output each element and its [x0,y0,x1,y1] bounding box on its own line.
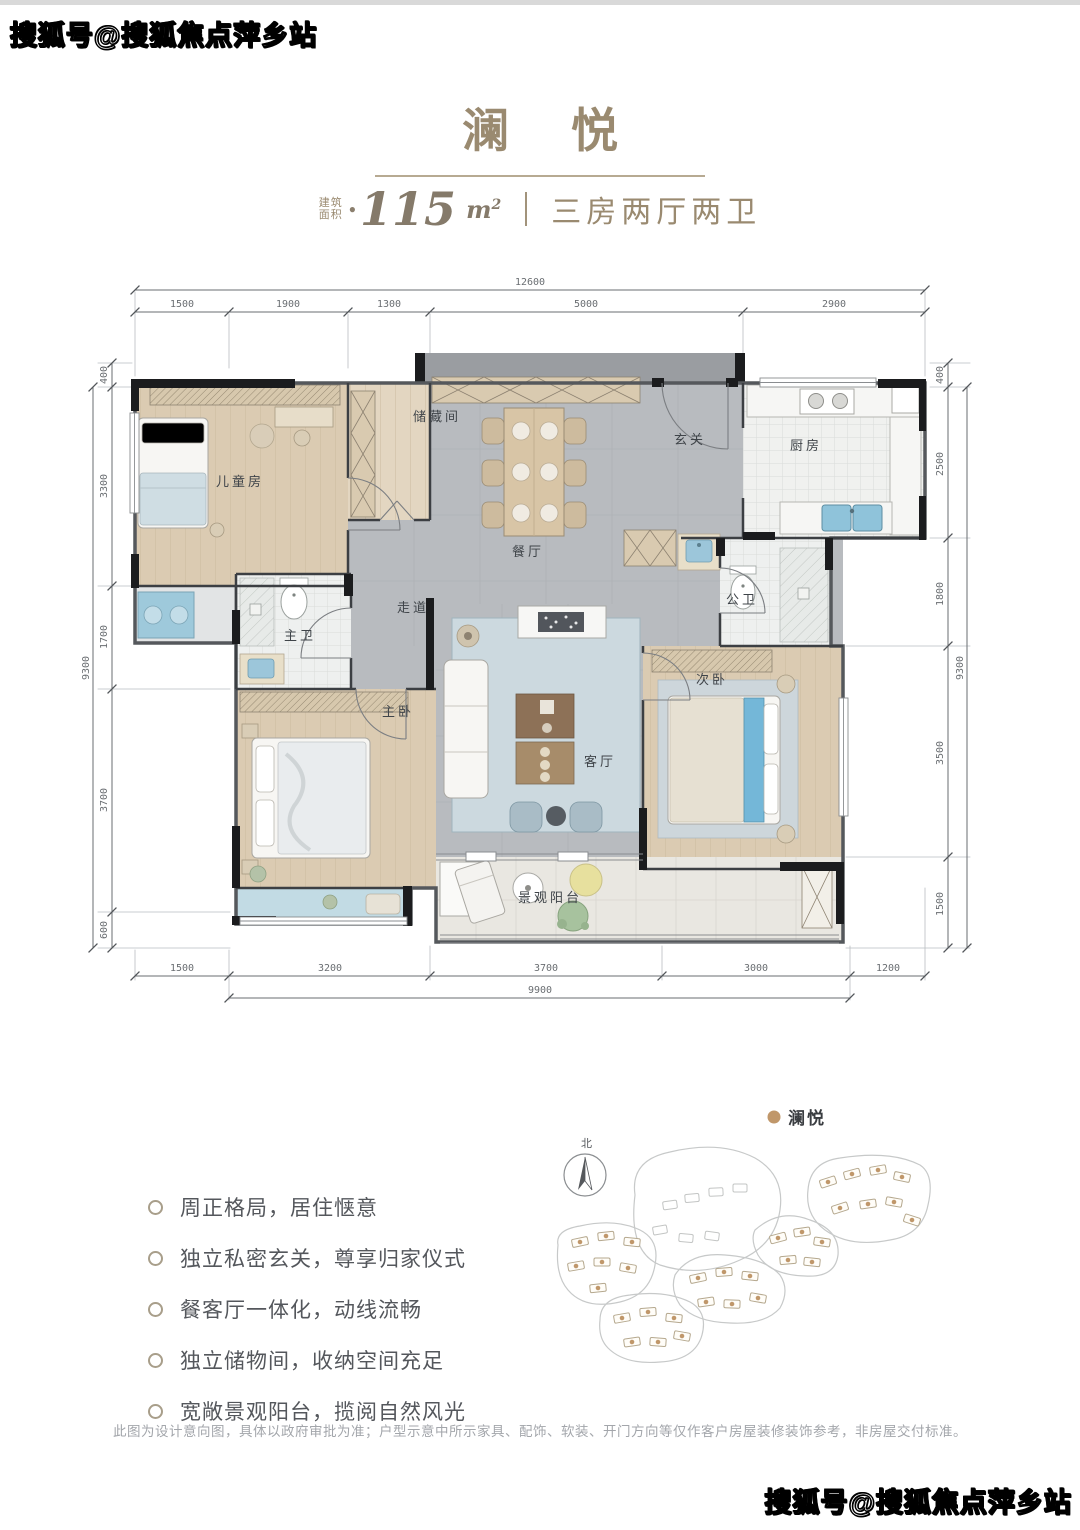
storage-cabinet [351,391,375,517]
feature-list: 周正格局，居住惬意 独立私密玄关，尊享归家仪式 餐客厅一体化，动线流畅 独立储物… [148,1192,466,1447]
label-storage: 储藏间 [413,409,461,424]
bullet-ring-icon [148,1302,163,1317]
site-parcels [557,1147,930,1362]
bullet-ring-icon [148,1251,163,1266]
svg-text:1200: 1200 [876,963,900,974]
watermark-top-left: 搜狐号@搜狐焦点萍乡站 [10,14,317,53]
page-title: 澜 悦 [0,92,1080,161]
label-living: 客厅 [584,754,616,769]
label-children-room: 儿童房 [216,474,264,489]
svg-text:2900: 2900 [822,299,846,310]
svg-text:1300: 1300 [377,299,401,310]
svg-text:400: 400 [99,366,110,384]
svg-text:1800: 1800 [935,582,946,606]
svg-text:1500: 1500 [170,963,194,974]
subtitle-separator [525,192,527,226]
layout-text: 三房两厅两卫 [551,187,761,231]
area-label: 建筑 面积 [319,197,343,221]
dim-right-total: 9300 [955,656,966,680]
feature-item: 周正格局，居住惬意 [148,1192,466,1222]
area-subtitle: 建筑 面积 ● 115 m2 三房两厅两卫 [0,187,1080,231]
floor-plan: 12600 1500 1900 1300 5000 2900 1500 3200… [80,268,1000,1058]
dim-top-total: 12600 [515,277,545,288]
label-second-bedroom: 次卧 [696,672,728,687]
title-char-2: 悦 [571,92,618,161]
plan-header: 澜 悦 建筑 面积 ● 115 m2 三房两厅两卫 [0,92,1080,231]
area-dot: ● [349,202,356,216]
label-master-bedroom: 主卧 [382,704,414,719]
svg-text:5000: 5000 [574,299,598,310]
label-dining: 餐厅 [512,544,544,559]
watermark-bottom-right: 搜狐号@搜狐焦点萍乡站 [765,1481,1072,1520]
svg-text:1700: 1700 [99,625,110,649]
svg-text:3500: 3500 [935,741,946,765]
entry-closet [432,377,640,403]
north-label: 北 [581,1137,592,1150]
legend-dot-icon [768,1111,781,1124]
svg-text:3700: 3700 [534,963,558,974]
dining-table [482,408,586,536]
disclaimer-text: 此图为设计意向图，具体以政府审批为准；户型示意中所示家具、配饰、软装、开门方向等… [0,1420,1080,1440]
living-room-furniture [444,606,640,832]
svg-text:3200: 3200 [318,963,342,974]
foyer-bench [624,530,676,566]
siteplan-legend: 澜悦 [768,1108,827,1128]
feature-item: 独立储物间，收纳空间充足 [148,1345,466,1375]
label-balcony: 景观阳台 [518,890,582,905]
legend-label: 澜悦 [788,1108,826,1128]
svg-text:1900: 1900 [276,299,300,310]
area-number: 115 [360,188,456,230]
svg-text:3700: 3700 [99,788,110,812]
north-compass-icon: 北 [564,1137,606,1196]
svg-text:600: 600 [99,921,110,939]
bullet-ring-icon [148,1353,163,1368]
svg-text:1500: 1500 [170,299,194,310]
title-divider [375,175,705,177]
label-corridor: 走道 [397,600,429,615]
hall-vanity [678,534,720,570]
feature-item: 独立私密玄关，尊享归家仪式 [148,1243,466,1273]
site-buildings [567,1165,920,1347]
area-unit: m2 [466,195,501,224]
svg-text:1500: 1500 [935,892,946,916]
site-plan-svg: 澜悦 北 [540,1080,970,1410]
label-foyer: 玄关 [674,432,706,447]
dim-bottom-total: 9900 [528,985,552,996]
dim-left-total: 9300 [81,656,92,680]
svg-text:400: 400 [935,366,946,384]
bullet-ring-icon [148,1200,163,1215]
floor-plan-svg: 12600 1500 1900 1300 5000 2900 1500 3200… [80,268,1000,1058]
label-guest-bath: 公卫 [726,592,758,607]
svg-text:3300: 3300 [99,474,110,498]
label-kitchen: 厨房 [790,438,822,453]
label-master-bath: 主卫 [284,628,316,643]
svg-text:2500: 2500 [935,452,946,476]
title-char-1: 澜 [462,92,509,161]
feature-item: 餐客厅一体化，动线流畅 [148,1294,466,1324]
svg-text:3000: 3000 [744,963,768,974]
page-top-strip [0,0,1080,5]
bullet-ring-icon [148,1404,163,1419]
site-plan: 澜悦 北 [540,1080,970,1410]
